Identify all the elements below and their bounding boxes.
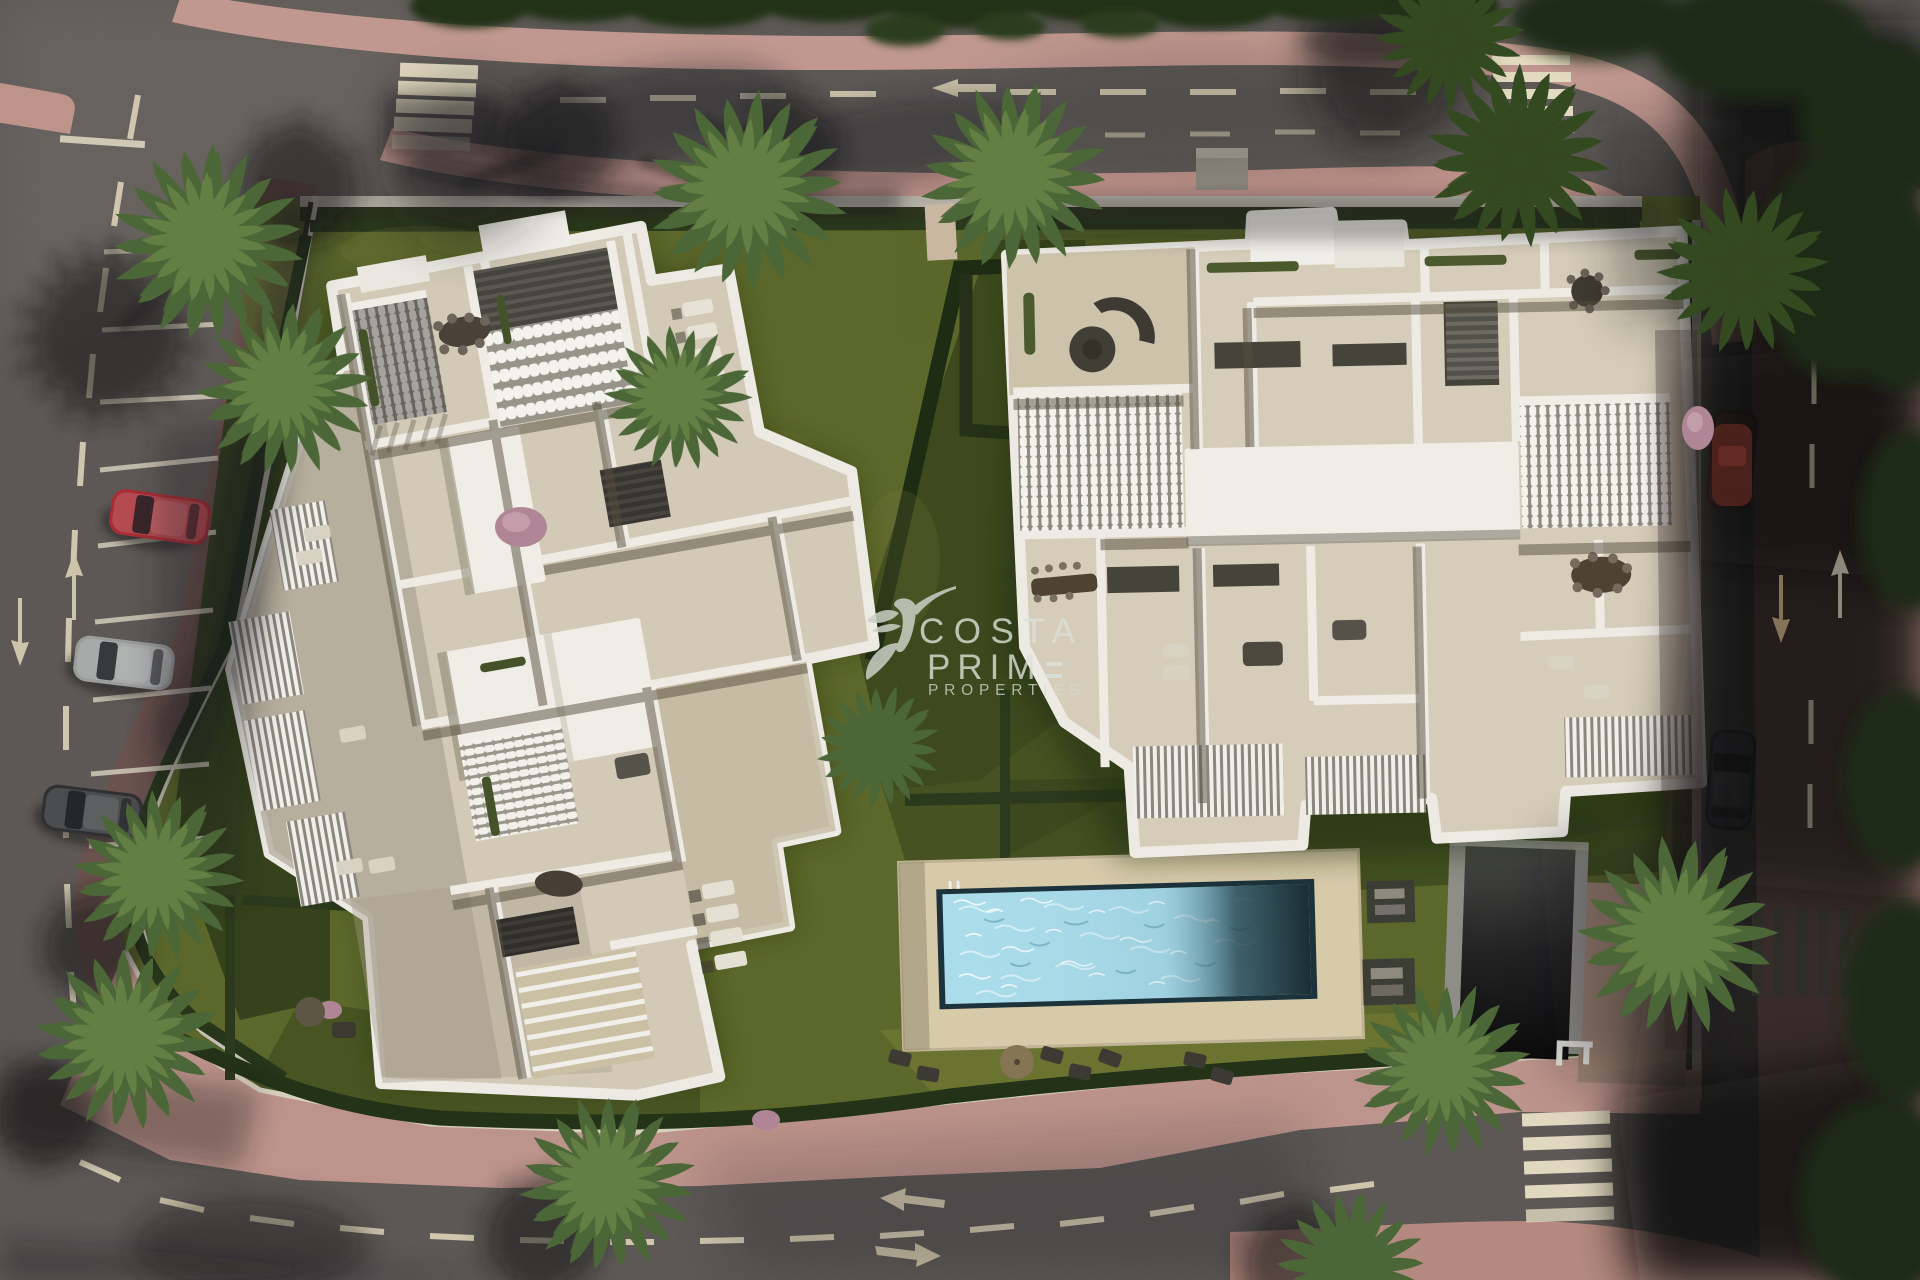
svg-text:COSTA: COSTA [919, 612, 1084, 651]
svg-text:PROPERTIES: PROPERTIES [928, 682, 1086, 699]
